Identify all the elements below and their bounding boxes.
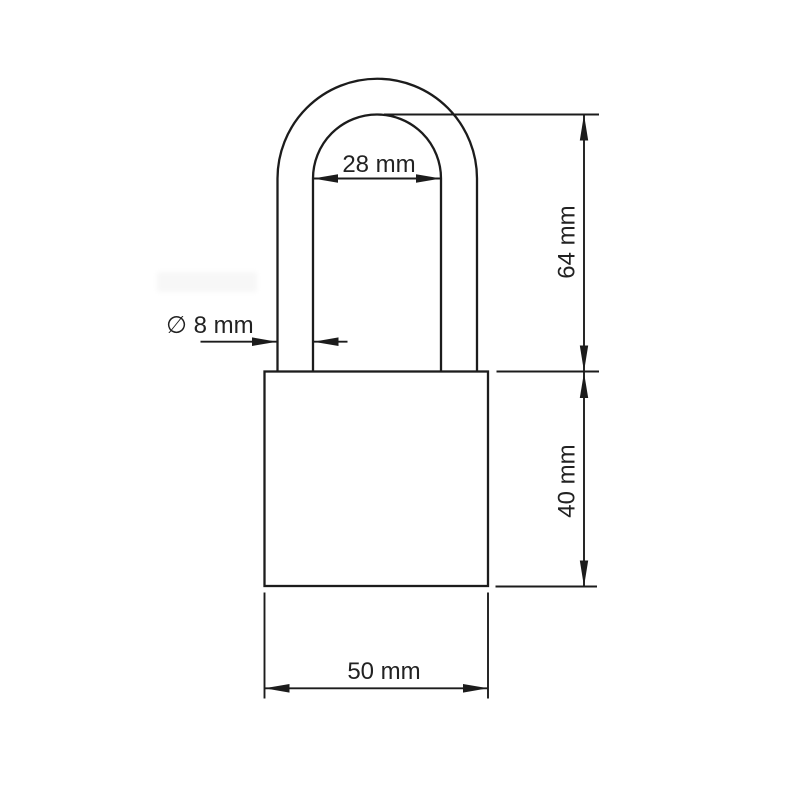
dim-label-shackle-height: 64 mm [554, 205, 581, 278]
arrowhead-up-icon [580, 115, 588, 141]
dim-label-body-width: 50 mm [347, 658, 420, 685]
arrowhead-left-icon [313, 174, 338, 183]
arrowhead-right-icon [463, 684, 488, 693]
dim-shackle-height: 64 mm [384, 115, 599, 372]
arrowhead-right-icon [416, 174, 441, 183]
dim-shackle-inner-width: 28 mm [313, 151, 441, 183]
dim-body-height: 40 mm [496, 372, 600, 587]
padlock-body [265, 372, 489, 587]
arrowhead-left-icon [314, 337, 339, 346]
drawing-canvas: 28 mm 64 mm 40 mm ∅ 8 mm [0, 0, 800, 800]
padlock-technical-drawing: 28 mm 64 mm 40 mm ∅ 8 mm [0, 0, 800, 800]
arrowhead-up-icon [580, 373, 588, 399]
dim-label-shackle-inner-width: 28 mm [342, 151, 415, 178]
faint-artifact [157, 272, 257, 292]
arrowhead-down-icon [580, 346, 588, 372]
dim-body-width: 50 mm [265, 593, 489, 699]
dim-label-shackle-diameter: ∅ 8 mm [166, 312, 254, 339]
arrowhead-down-icon [580, 561, 588, 587]
dim-shackle-diameter: ∅ 8 mm [166, 312, 348, 346]
arrowhead-left-icon [265, 684, 290, 693]
shackle-outer-contour [278, 79, 478, 372]
dim-label-body-height: 40 mm [554, 444, 581, 517]
arrowhead-right-icon [252, 337, 277, 346]
